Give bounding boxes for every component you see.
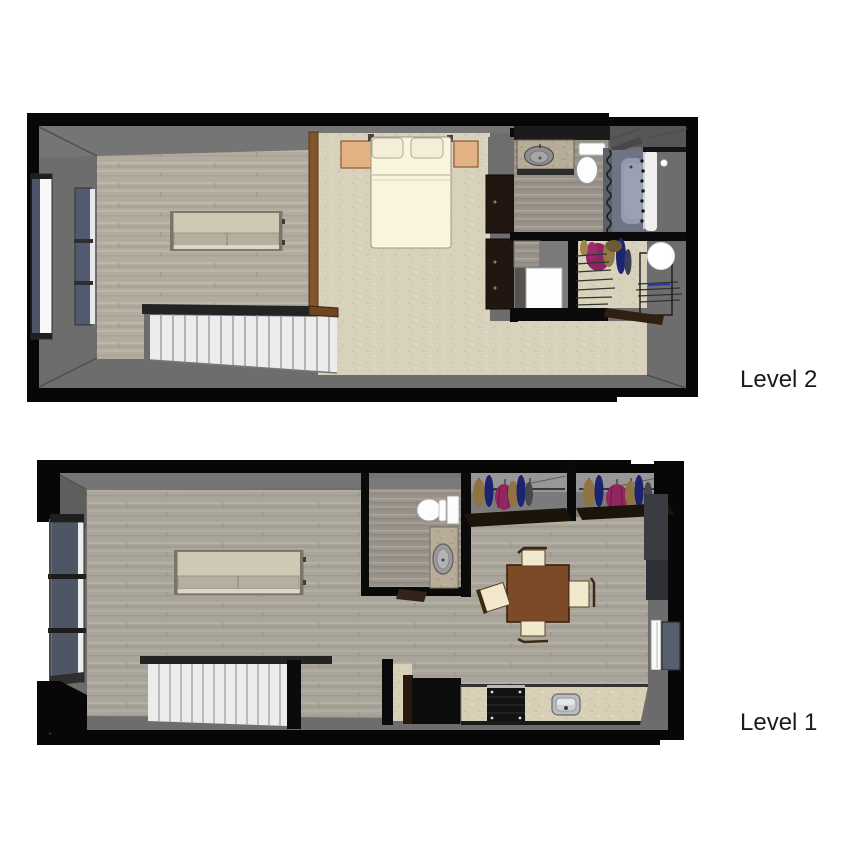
svg-text:Level 2: Level 2 <box>740 366 817 393</box>
svg-text:Level 1: Level 1 <box>740 709 817 736</box>
